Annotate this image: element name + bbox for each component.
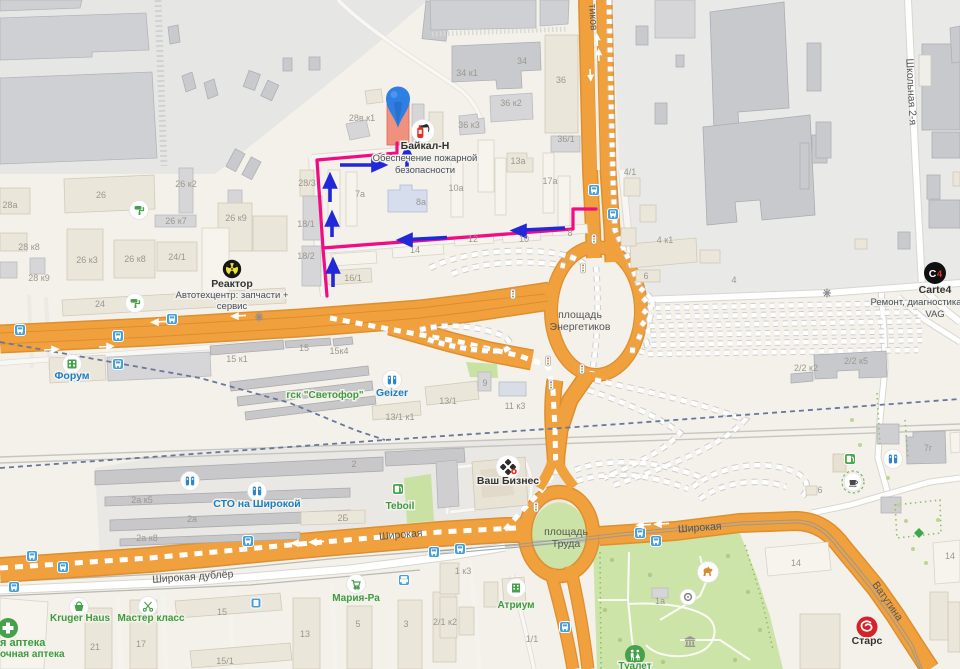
svg-text:28 к9: 28 к9 [28, 273, 49, 283]
svg-text:Реактор: Реактор [211, 278, 253, 290]
svg-text:26 к2: 26 к2 [175, 179, 196, 189]
svg-text:1/1: 1/1 [526, 634, 539, 644]
svg-text:36/1: 36/1 [557, 134, 575, 144]
svg-text:10а: 10а [448, 183, 463, 193]
svg-text:Ремонт, диагностика: Ремонт, диагностика [870, 297, 960, 308]
svg-text:2Б: 2Б [338, 513, 349, 523]
svg-text:18/2: 18/2 [297, 251, 315, 261]
svg-text:15/1: 15/1 [216, 656, 234, 666]
svg-text:2а к8: 2а к8 [136, 533, 157, 543]
svg-text:17а: 17а [542, 176, 557, 186]
svg-text:24/1: 24/1 [168, 252, 186, 262]
svg-text:3: 3 [403, 619, 408, 629]
svg-text:28/3: 28/3 [298, 178, 316, 188]
svg-text:Автотехцентр: запчасти +: Автотехцентр: запчасти + [176, 290, 289, 301]
svg-text:36 к3: 36 к3 [458, 120, 479, 130]
svg-text:28в к1: 28в к1 [349, 113, 375, 123]
svg-text:11 к3: 11 к3 [505, 401, 526, 411]
svg-text:Carte4: Carte4 [919, 284, 952, 296]
svg-text:26 к7: 26 к7 [165, 216, 186, 226]
svg-text:7а: 7а [355, 189, 365, 199]
svg-text:Старс: Старс [852, 635, 883, 647]
svg-text:14: 14 [410, 245, 420, 255]
svg-text:28 к8: 28 к8 [18, 242, 39, 252]
svg-text:я аптека: я аптека [0, 637, 46, 649]
svg-text:Обеспечение пожарной: Обеспечение пожарной [373, 153, 478, 164]
svg-text:8: 8 [567, 228, 572, 238]
svg-text:8а: 8а [416, 197, 426, 207]
svg-text:1а: 1а [655, 596, 665, 606]
svg-text:Kruger Haus: Kruger Haus [50, 613, 110, 624]
svg-text:7г: 7г [924, 443, 933, 453]
svg-text:Труда: Труда [552, 538, 581, 550]
svg-text:1 к3: 1 к3 [455, 566, 471, 576]
svg-text:Teboil: Teboil [386, 501, 415, 512]
svg-text:безопасности: безопасности [395, 165, 455, 176]
svg-text:6: 6 [643, 271, 648, 281]
svg-text:15 к1: 15 к1 [226, 354, 247, 364]
svg-text:площадь: площадь [558, 309, 602, 321]
svg-text:16/1: 16/1 [344, 273, 362, 283]
svg-text:15: 15 [217, 607, 227, 617]
svg-text:очная аптека: очная аптека [0, 649, 65, 660]
svg-text:СТО на Широкой: СТО на Широкой [213, 498, 300, 510]
svg-text:4: 4 [731, 275, 736, 285]
svg-text:4 к1: 4 к1 [657, 235, 673, 245]
svg-text:15к4: 15к4 [330, 346, 349, 356]
svg-text:13: 13 [300, 629, 310, 639]
svg-text:Geizer: Geizer [376, 387, 408, 399]
svg-text:13/1: 13/1 [439, 396, 457, 406]
svg-text:6: 6 [817, 485, 822, 495]
svg-text:14: 14 [791, 558, 801, 568]
svg-text:Ваш Бизнес: Ваш Бизнес [477, 475, 539, 487]
svg-text:17: 17 [136, 639, 146, 649]
svg-text:12: 12 [468, 234, 478, 244]
svg-text:VAG: VAG [925, 309, 944, 320]
svg-text:Байкал-Н: Байкал-Н [401, 140, 450, 152]
svg-text:18/1: 18/1 [297, 219, 315, 229]
svg-text:36 к2: 36 к2 [500, 98, 521, 108]
svg-text:36: 36 [556, 75, 566, 85]
svg-text:2: 2 [351, 459, 356, 469]
svg-text:2а к5: 2а к5 [131, 495, 152, 505]
svg-text:площадь: площадь [544, 526, 588, 538]
svg-text:21: 21 [90, 642, 100, 652]
svg-text:26 к8: 26 к8 [124, 254, 145, 264]
svg-text:Туалет: Туалет [618, 661, 651, 669]
svg-text:24: 24 [95, 299, 105, 309]
svg-text:C: C [929, 268, 937, 280]
svg-text:4: 4 [937, 269, 943, 280]
svg-text:Энергетиков: Энергетиков [550, 321, 611, 333]
svg-text:28а: 28а [2, 200, 17, 210]
svg-text:13а: 13а [510, 156, 525, 166]
svg-text:Форум: Форум [54, 370, 89, 382]
svg-text:Мария-Ра: Мария-Ра [332, 593, 380, 604]
svg-text:сервис: сервис [217, 301, 248, 312]
svg-text:34 к1: 34 к1 [456, 68, 477, 78]
svg-text:Мастер класс: Мастер класс [117, 613, 185, 624]
svg-text:2/1 к2: 2/1 к2 [433, 617, 457, 627]
svg-text:2/2 к2: 2/2 к2 [794, 363, 818, 373]
svg-text:10: 10 [519, 234, 529, 244]
svg-text:гск "Светофор": гск "Светофор" [286, 389, 363, 401]
svg-text:Атриум: Атриум [497, 600, 534, 611]
svg-text:2а: 2а [187, 514, 197, 524]
svg-text:тиков: тиков [586, 3, 600, 31]
svg-text:15: 15 [299, 343, 309, 353]
svg-text:34: 34 [517, 56, 527, 66]
svg-text:4/1: 4/1 [624, 167, 637, 177]
svg-text:26 к9: 26 к9 [225, 213, 246, 223]
svg-text:26: 26 [96, 190, 106, 200]
svg-text:26 к3: 26 к3 [76, 255, 97, 265]
svg-text:2/2 к5: 2/2 к5 [844, 356, 868, 366]
svg-text:5: 5 [355, 619, 360, 629]
svg-text:9: 9 [482, 378, 487, 388]
svg-text:13/1 к1: 13/1 к1 [386, 412, 415, 422]
svg-text:14: 14 [945, 551, 955, 561]
